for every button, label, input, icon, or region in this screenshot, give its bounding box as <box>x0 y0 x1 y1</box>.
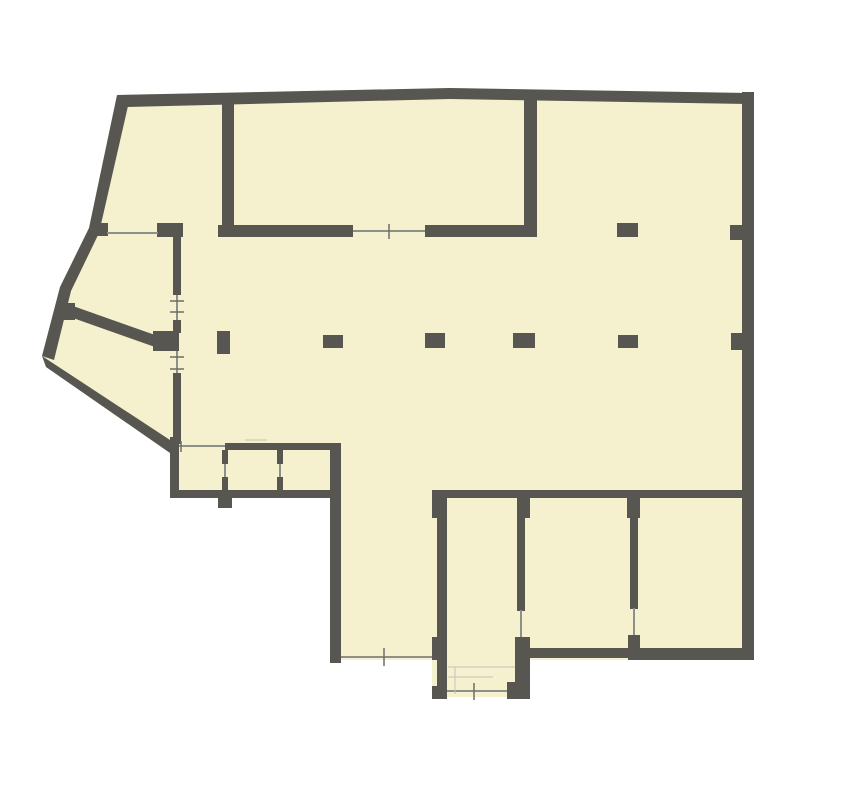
divider-one-bottom <box>222 477 228 490</box>
north-wall-segment-b <box>157 223 183 237</box>
hall-southwest-wall <box>330 443 341 663</box>
left-wall-stub <box>60 303 75 320</box>
pillar-row2-4 <box>513 333 535 348</box>
stair-bay-east-wall <box>517 518 525 611</box>
floor-plan-svg <box>0 0 859 800</box>
small-rooms-top-wall <box>225 443 341 450</box>
north-wall-segment-a <box>93 223 108 236</box>
west-corridor-pillar-block <box>153 331 179 351</box>
small-rooms-west-wall <box>170 437 179 498</box>
stair-bay-west-wall <box>437 490 447 692</box>
divider-one-top <box>222 450 228 464</box>
west-corridor-wall-lower <box>173 373 181 444</box>
pillar-row1-1 <box>617 223 638 237</box>
stair-bay-west-mid-block <box>432 637 447 660</box>
pillar-row2-2 <box>323 335 343 348</box>
pillar-row2-3 <box>425 333 445 348</box>
divider-two-top <box>277 450 283 464</box>
south-rooms-header-wall <box>433 490 748 498</box>
southeast-bottom-wall <box>628 648 754 660</box>
west-corridor-wall-upper <box>173 237 181 295</box>
north-wall-segment-c <box>218 225 353 237</box>
north-wall-segment-d <box>425 225 537 237</box>
right-exterior-wall <box>742 92 754 660</box>
right-wall-stub-upper <box>730 225 748 240</box>
top-middle-room-east-wall <box>524 94 537 237</box>
room-divider-east-bottom-block <box>628 635 640 660</box>
room-a-bottom-wall <box>528 648 630 658</box>
small-rooms-bottom-stub <box>218 497 232 508</box>
room-divider-east-wall <box>630 518 638 609</box>
small-rooms-bottom-wall <box>170 490 341 498</box>
top-left-room-east-wall <box>222 100 234 237</box>
divider-two-bottom <box>277 477 283 490</box>
floor-plan-image <box>0 0 859 800</box>
pillar-row2-5 <box>618 335 638 348</box>
pillar-row2-1 <box>217 331 230 354</box>
right-wall-stub-mid <box>731 333 750 350</box>
stair-bay-east-bottom-block <box>515 637 530 699</box>
